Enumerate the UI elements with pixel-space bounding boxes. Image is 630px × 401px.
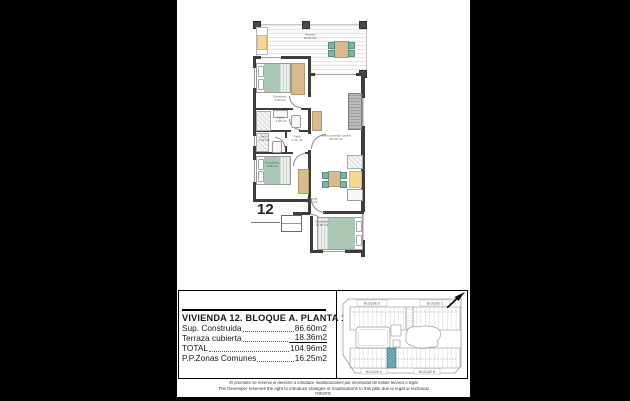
block-label: BLOQUE B xyxy=(419,370,435,374)
room-label-paso: Paso1.32 m2 xyxy=(292,136,303,143)
dining-chair xyxy=(340,181,347,188)
kitchen-counter xyxy=(347,155,363,169)
leader-line xyxy=(251,222,280,223)
room-label-salon: Salón comedor cocina30.05 m2 xyxy=(321,135,351,142)
row-value: 18.36m2 xyxy=(289,332,327,343)
room-label-terraza: Terraza18.36 m2 xyxy=(304,34,317,41)
terrace-storage xyxy=(257,35,267,50)
screenshot-canvas: Terraza18.36 m2 Dormitorio9.80 m2 Baño3.… xyxy=(0,0,630,401)
bed-pillows xyxy=(257,64,264,92)
room-label-entrada: Entrada2.02 m2 xyxy=(307,198,318,205)
kitchen-appliance xyxy=(349,171,362,188)
room-label-dormitorio-3: Dormitorio10.05 m2 xyxy=(315,221,329,228)
bed xyxy=(256,156,291,185)
wall xyxy=(323,211,364,214)
room-label-bano-2: Baño2.30 m2 xyxy=(259,136,270,143)
table-row: Terraza cubierta 18.36m2 xyxy=(182,334,327,343)
room-label-dormitorio-1: Dormitorio9.80 m2 xyxy=(273,96,287,103)
terrace-chair xyxy=(328,50,335,57)
block-label: BLOQUE C xyxy=(427,302,444,306)
window xyxy=(323,250,345,253)
unit-number: 12 xyxy=(257,201,274,218)
terrace-chair xyxy=(328,42,335,49)
terrace-column xyxy=(359,21,367,29)
row-value: 104.96m2 xyxy=(290,343,327,353)
unit-row-bottom xyxy=(350,348,460,368)
terrace-chair xyxy=(348,42,355,49)
wardrobe xyxy=(291,63,305,95)
pool-left xyxy=(356,327,390,348)
wall xyxy=(285,132,287,138)
row-label: P.P.Zonas Comunes xyxy=(182,353,256,363)
title-rule xyxy=(182,309,326,311)
block-label: BLOQUE D xyxy=(364,302,381,306)
row-label: Sup. Construida xyxy=(182,323,242,333)
site-structure xyxy=(391,325,401,336)
toilet xyxy=(291,115,301,128)
toilet xyxy=(272,141,282,153)
bed-pillows xyxy=(355,218,362,249)
row-value: 16.25m2 xyxy=(295,353,327,363)
site-structure xyxy=(393,340,400,347)
entrance-steps xyxy=(281,215,302,232)
surface-table: Sup. Construida 86.60m2 Terraza cubierta… xyxy=(182,324,327,363)
highlighted-unit-hatch xyxy=(387,348,396,368)
bed-pillows xyxy=(257,157,264,184)
dotted-leader xyxy=(243,341,288,342)
wall xyxy=(301,108,311,110)
block-label: BLOQUE A xyxy=(366,370,383,374)
row-label: TOTAL xyxy=(182,343,208,353)
kitchen-cabinet xyxy=(347,189,363,201)
north-arrow-icon xyxy=(447,292,465,308)
legal-disclaimer-en: The Developer reserves the right to intr… xyxy=(215,387,432,396)
dotted-leader xyxy=(209,351,289,352)
sofa xyxy=(348,93,362,130)
wall xyxy=(308,59,311,97)
terrace-column xyxy=(302,21,310,29)
dotted-leader xyxy=(243,331,294,332)
wall xyxy=(299,130,311,132)
pool-right xyxy=(406,326,441,348)
window-glass-door xyxy=(315,73,356,76)
room-label-bano-1: Baño3.65 m2 xyxy=(276,117,287,124)
room-label-dormitorio-2: Dormitorio8.05 m2 xyxy=(265,162,279,169)
bed xyxy=(256,63,291,93)
terrace-table xyxy=(334,41,349,58)
legal-disclaimer-es: El promotor se reserva el derecho a intr… xyxy=(221,381,426,385)
site-map: BLOQUE D BLOQUE C BLOQUE A BLOQUE B xyxy=(337,294,465,378)
plan-sheet: Terraza18.36 m2 Dormitorio9.80 m2 Baño3.… xyxy=(177,0,470,397)
table-row: P.P.Zonas Comunes 16.25m2 xyxy=(182,354,327,363)
stair-strip xyxy=(406,307,413,330)
terrace-chair xyxy=(348,50,355,57)
wall xyxy=(285,146,287,152)
table-row: TOTAL 104.96m2 xyxy=(182,344,327,353)
panel-title: VIVIENDA 12. BLOQUE A. PLANTA 1ª xyxy=(182,313,350,323)
cabinet xyxy=(312,111,322,131)
dining-chair xyxy=(322,181,329,188)
window xyxy=(261,56,281,59)
wardrobe xyxy=(298,169,309,194)
row-label: Terraza cubierta xyxy=(182,333,242,343)
dining-chair xyxy=(322,172,329,179)
shower xyxy=(256,111,271,131)
dotted-leader xyxy=(257,361,293,362)
dining-chair xyxy=(340,172,347,179)
